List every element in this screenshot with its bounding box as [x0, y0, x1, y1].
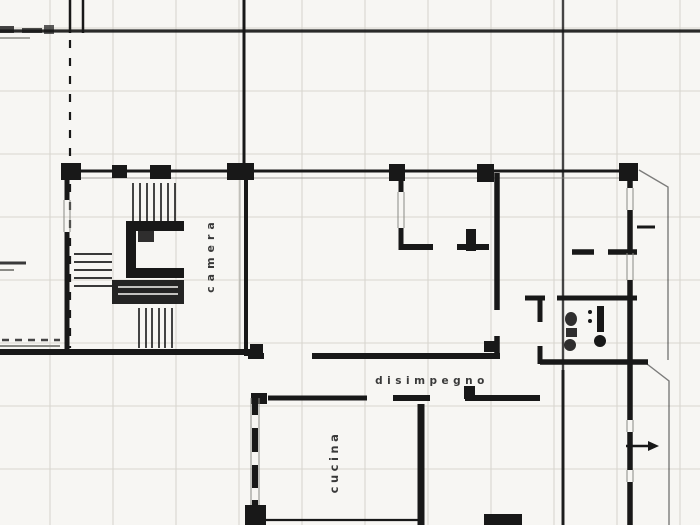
arrow-head: [648, 441, 659, 451]
door-jamb: [484, 341, 498, 352]
exterior-wall-top: [61, 163, 638, 182]
balcony-edge: [639, 170, 668, 360]
stairs-upper-flight: [133, 183, 175, 221]
wall-pillar: [619, 163, 638, 181]
door-jamb: [464, 386, 475, 399]
bedroom-walls: [248, 344, 500, 356]
wall-corner: [245, 505, 266, 525]
balcony-outline-upper: [639, 170, 668, 360]
landing-fill: [112, 280, 184, 304]
axis-smudge: [22, 28, 42, 33]
kitchen-label-cucina: cucina: [327, 431, 341, 494]
stairs-lower-flight: [139, 308, 172, 348]
fixture-base: [566, 328, 577, 337]
closet-stub-wall: [466, 229, 476, 251]
bidet-fixture-icon: [564, 312, 577, 351]
floor-plan-scan: camera disimpegno cucina: [0, 0, 700, 525]
corridor-label-disimpegno: disimpegno: [375, 375, 489, 387]
axis-smudge: [44, 25, 54, 34]
central-partition: [484, 173, 637, 356]
floor-plan-canvas: camera disimpegno cucina: [0, 0, 700, 525]
fixture-dot: [588, 310, 592, 314]
exterior-wall-right: [627, 180, 633, 525]
wall-pillar: [150, 165, 171, 179]
elevator-shaft: [126, 221, 184, 278]
room-label-camera: camera: [204, 217, 217, 293]
wall-pillar: [61, 163, 81, 180]
closet-walls: [398, 177, 489, 251]
axis-smudge: [0, 26, 14, 33]
wc-fixture-icon: [588, 306, 606, 347]
landing-slab: [112, 280, 184, 304]
wall-pillar: [477, 164, 494, 182]
fixture-dot: [588, 319, 592, 323]
door-jamb: [250, 344, 263, 356]
fixture-bowl: [564, 339, 576, 351]
corridor-walls: [251, 386, 540, 404]
wall-pillar: [112, 165, 127, 178]
fixture-bowl: [565, 312, 577, 326]
fixture-tank: [597, 306, 604, 332]
wall-pillar: [227, 163, 254, 180]
elevator-wall: [126, 268, 184, 278]
fixture-bowl: [594, 335, 606, 347]
bottom-wall-segment: [484, 514, 522, 525]
elevator-cab-mark: [138, 231, 154, 242]
